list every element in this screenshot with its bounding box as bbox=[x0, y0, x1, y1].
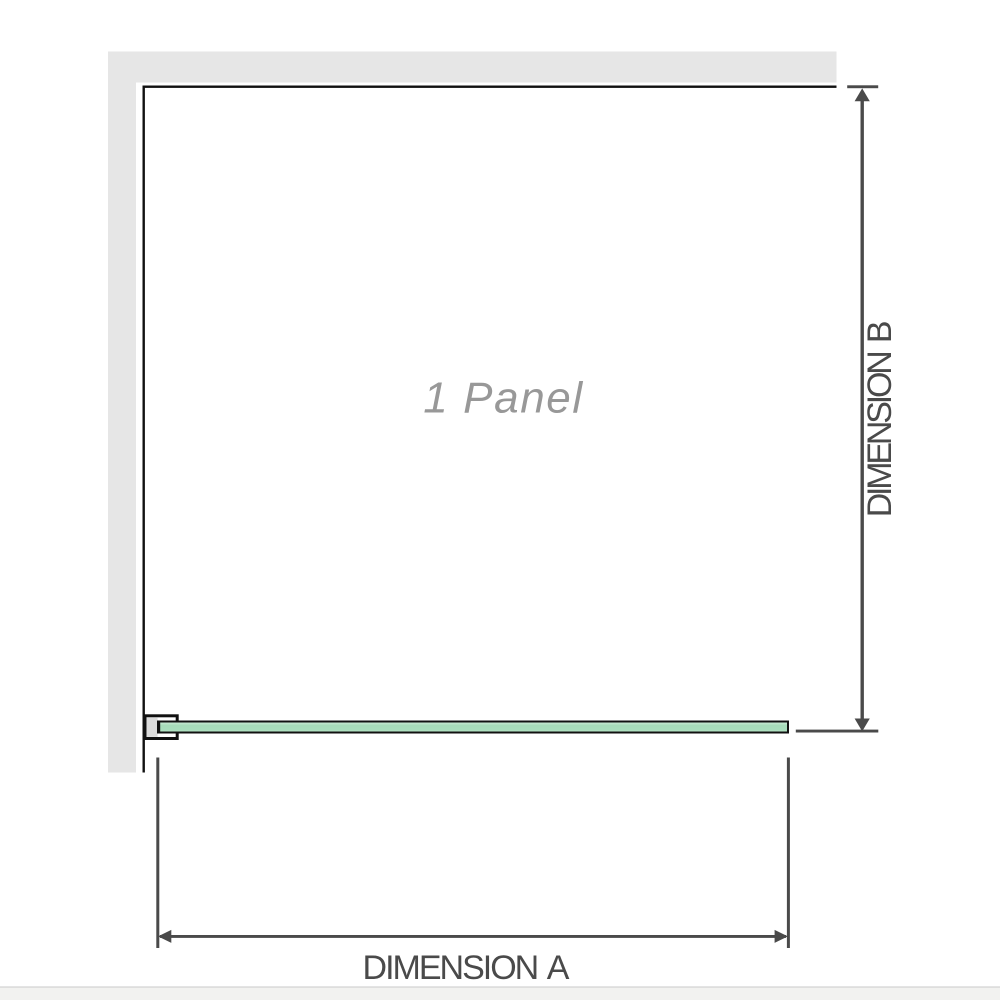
svg-text:DIMENSION A: DIMENSION A bbox=[363, 949, 570, 987]
svg-text:1 Panel: 1 Panel bbox=[423, 374, 583, 423]
svg-text:DIMENSION B: DIMENSION B bbox=[861, 322, 899, 517]
